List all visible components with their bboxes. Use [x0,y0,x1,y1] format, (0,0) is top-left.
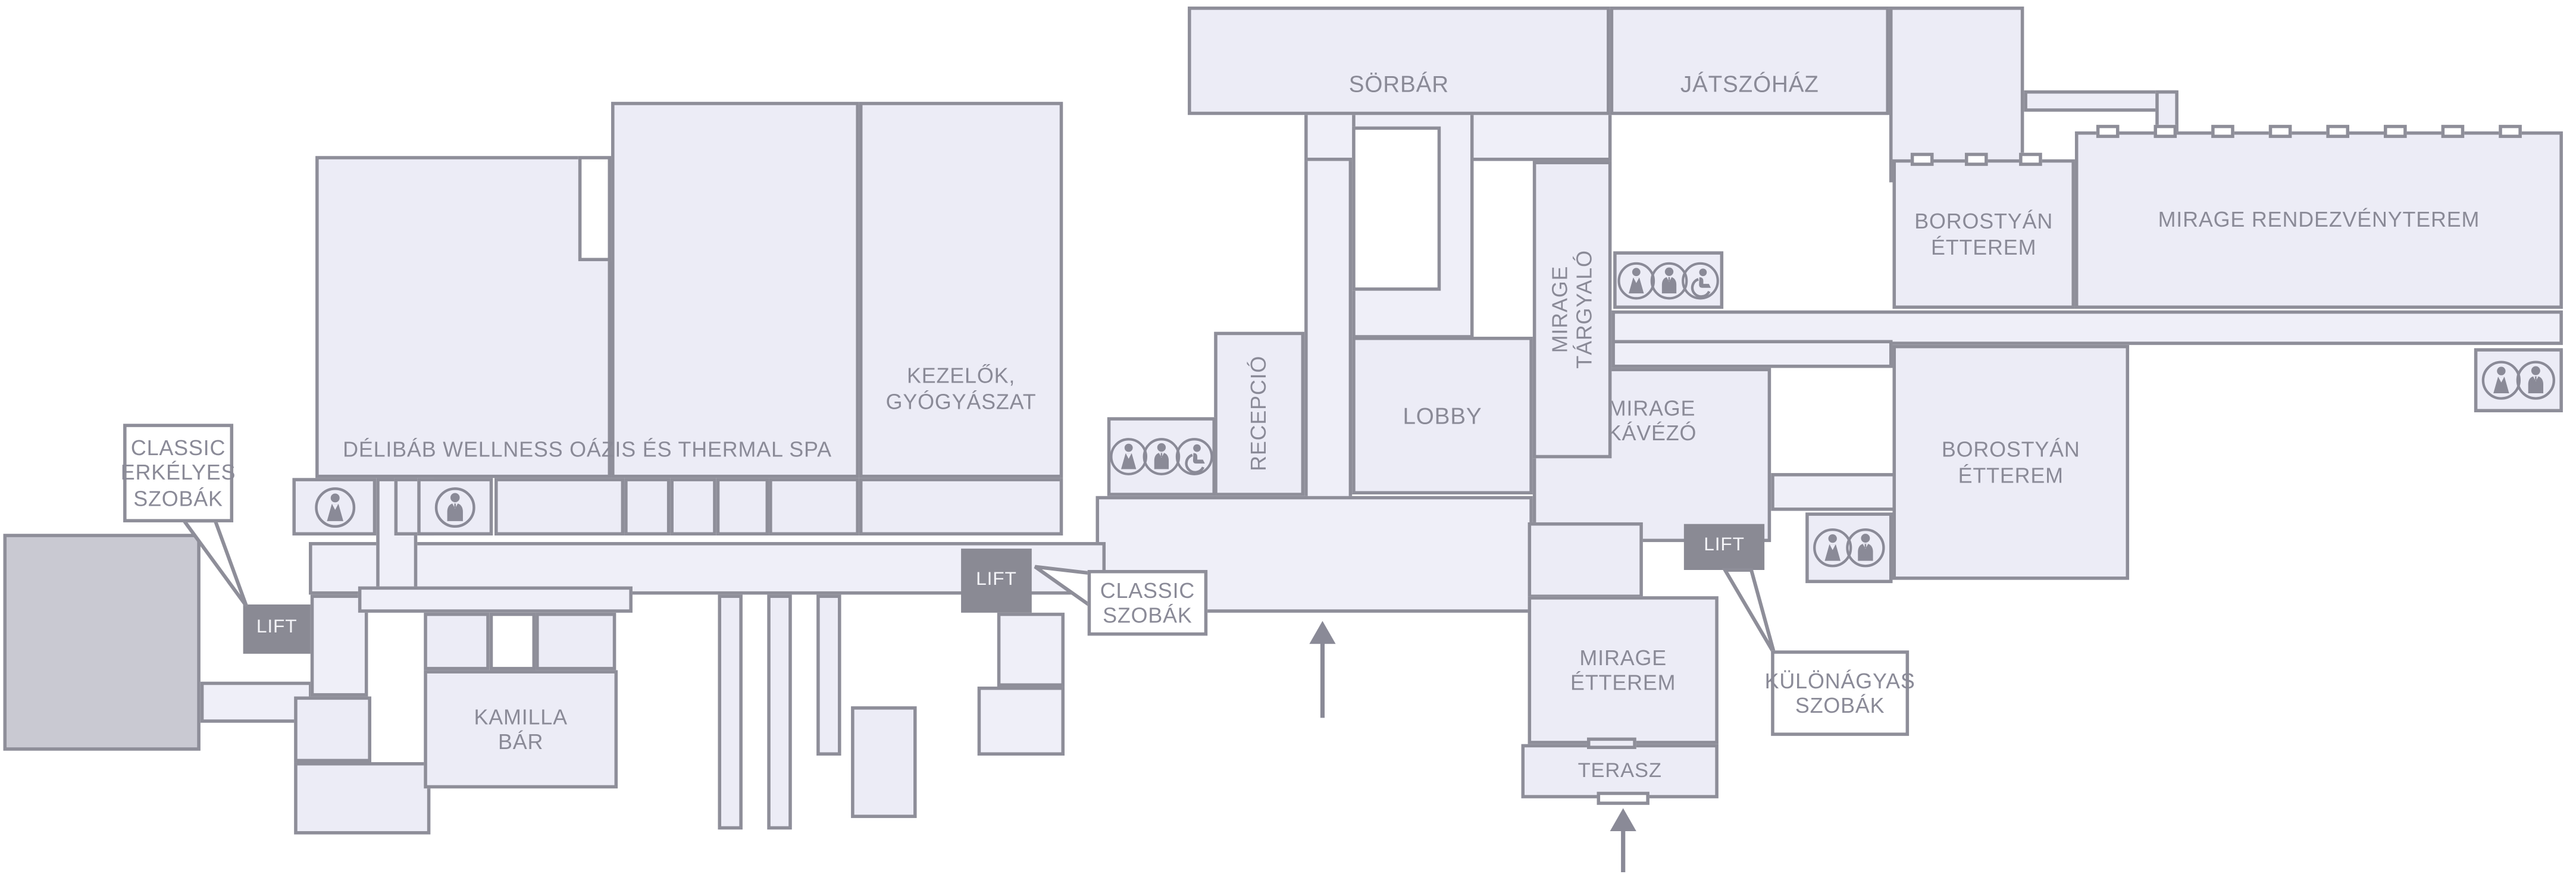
mirage-rendezvenyterem-crenel-4 [2326,125,2349,138]
lift-1-label: LIFT [256,618,298,640]
mirage-rendezvenyterem-crenel-1 [2154,125,2177,138]
block-top-right [1889,7,2024,182]
callout-classic: CLASSIC SZOBÁK [1088,570,1208,635]
wc-rendezveny [2474,348,2563,412]
callout-classic-erkelyes-label: CLASSIC ERKÉLYES SZOBÁK [121,436,236,511]
kamilla-cell-b [536,613,616,671]
wc-borostyan [1805,512,1892,583]
borostyan-etterem-felso-label: BOROSTYÁN ÉTTEREM [1914,209,2053,259]
terasz-door [1587,738,1636,749]
callout-kulonagyas: KÜLÖNÁGYAS SZOBÁK [1771,650,1909,736]
mirage-rendezvenyterem-crenel-6 [2442,125,2465,138]
lift-3-label: LIFT [1704,536,1745,558]
lift-1: LIFT [243,604,311,654]
row-cell-3 [624,478,670,535]
borostyan-etterem-jobb: BOROSTYÁN ÉTTEREM [1892,345,2129,580]
jatszohaz: JÁTSZÓHÁZ [1610,7,1889,115]
lobby: LOBBY [1352,337,1533,494]
entrance-arrow-2 [1610,808,1636,872]
wc-wellness-ferfi [417,478,493,535]
borostyan-etterem-felso-crenel-1 [1965,153,1988,166]
wellness-bal [315,156,611,478]
man-icon [1845,527,1886,568]
mirage-rendezvenyterem-crenel-3 [2269,125,2292,138]
mirage-rendezvenyterem-crenel-7 [2499,125,2522,138]
mirage-rendezvenyterem-crenel-2 [2211,125,2234,138]
wheelchair-icon [1681,261,1720,300]
slit-1 [718,594,742,829]
wheelchair-icon [1174,437,1213,476]
row-cell-4 [670,478,716,535]
arm-horizontal [2024,90,2177,112]
jatszohaz-label: JÁTSZÓHÁZ [1680,70,1819,98]
notch-terasz [1597,792,1649,805]
wc-recepcio [1107,417,1216,496]
callout-classic-erkelyes: CLASSIC ERKÉLYES SZOBÁK [123,424,233,522]
notch-kamilla [490,613,536,671]
lobby-label: LOBBY [1403,402,1482,430]
lift-2: LIFT [961,549,1032,613]
mirage-rendezvenyterem-crenel-0 [2096,125,2120,138]
notch-block-b [1352,127,1441,291]
stub-borostyan [1771,473,1896,510]
man-icon [434,485,477,528]
borostyan-etterem-felso: BOROSTYÁN ÉTTEREM [1892,159,2074,309]
corridor-right-deep [1611,340,1892,368]
row-cell-5 [716,478,769,535]
sorbar-label: SÖRBÁR [1349,70,1449,98]
terasz: TERASZ [1522,744,1719,798]
mirage-etterem: MIRAGE ÉTTEREM [1528,596,1719,744]
room-sw-2 [294,762,430,834]
callout-classic-label: CLASSIC SZOBÁK [1100,578,1195,628]
wellness-jobb [611,102,859,478]
borostyan-etterem-jobb-label: BOROSTYÁN ÉTTEREM [1942,437,2080,488]
kezelok: KEZELŐK, GYÓGYÁSZAT [859,102,1063,478]
mirage-targyalo: MIRAGE TÁRGYALÓ [1533,161,1612,459]
row-cell-7 [859,478,1063,535]
lift-2-label: LIFT [976,569,1017,591]
row-cell-6 [769,478,859,535]
woman-icon [313,485,356,528]
callout-kulonagyas-tail [1725,570,1774,654]
mirage-rendezvenyterem: MIRAGE RENDEZVÉNYTEREM [2075,131,2563,309]
building-mass-sw [4,534,201,750]
recepcio: RECEPCIÓ [1214,332,1304,496]
borostyan-etterem-felso-crenel-2 [2019,153,2042,166]
borostyan-etterem-felso-crenel-0 [1911,153,1934,166]
slit-3 [816,594,841,756]
entrance-arrow-1 [1309,621,1335,718]
vcorr-classic-b [978,687,1065,756]
room-sw-1 [294,697,371,762]
mirage-etterem-felso [1528,522,1643,598]
kamilla-cell-a [424,613,489,671]
mirage-targyalo-label: MIRAGE TÁRGYALÓ [1547,250,1598,369]
notch-wellness [578,156,611,261]
slit-2 [767,594,791,829]
floor-plan: SÖRBÁRJÁTSZÓHÁZMIRAGE RENDEZVÉNYTEREMBOR… [0,0,2576,874]
terasz-label: TERASZ [1578,759,1662,784]
mirage-etterem-label: MIRAGE ÉTTEREM [1570,645,1676,696]
mirage-kavezo-label: MIRAGE KÁVÉZÓ [1607,395,1697,446]
room-sw-small [851,706,916,818]
corridor-kamilla [358,587,633,613]
kezelok-label: KEZELŐK, GYÓGYÁSZAT [886,364,1037,414]
sorbar-corridor [1304,108,1352,503]
wc-wellness-noi [292,478,376,535]
kamilla-bar: KAMILLA BÁR [424,670,618,788]
mirage-rendezvenyterem-label: MIRAGE RENDEZVÉNYTEREM [2158,208,2480,233]
row-cell-2 [494,478,624,535]
recepcio-label: RECEPCIÓ [1247,356,1272,472]
vcorr-classic-a [997,613,1065,687]
mirage-rendezvenyterem-crenel-5 [2384,125,2407,138]
man-icon [2515,360,2556,401]
sorbar: SÖRBÁR [1188,7,1610,115]
wc-targyalo [1613,251,1723,309]
lift-3: LIFT [1684,524,1764,570]
callout-kulonagyas-label: KÜLÖNÁGYAS SZOBÁK [1765,668,1915,719]
kamilla-bar-label: KAMILLA BÁR [474,704,567,754]
